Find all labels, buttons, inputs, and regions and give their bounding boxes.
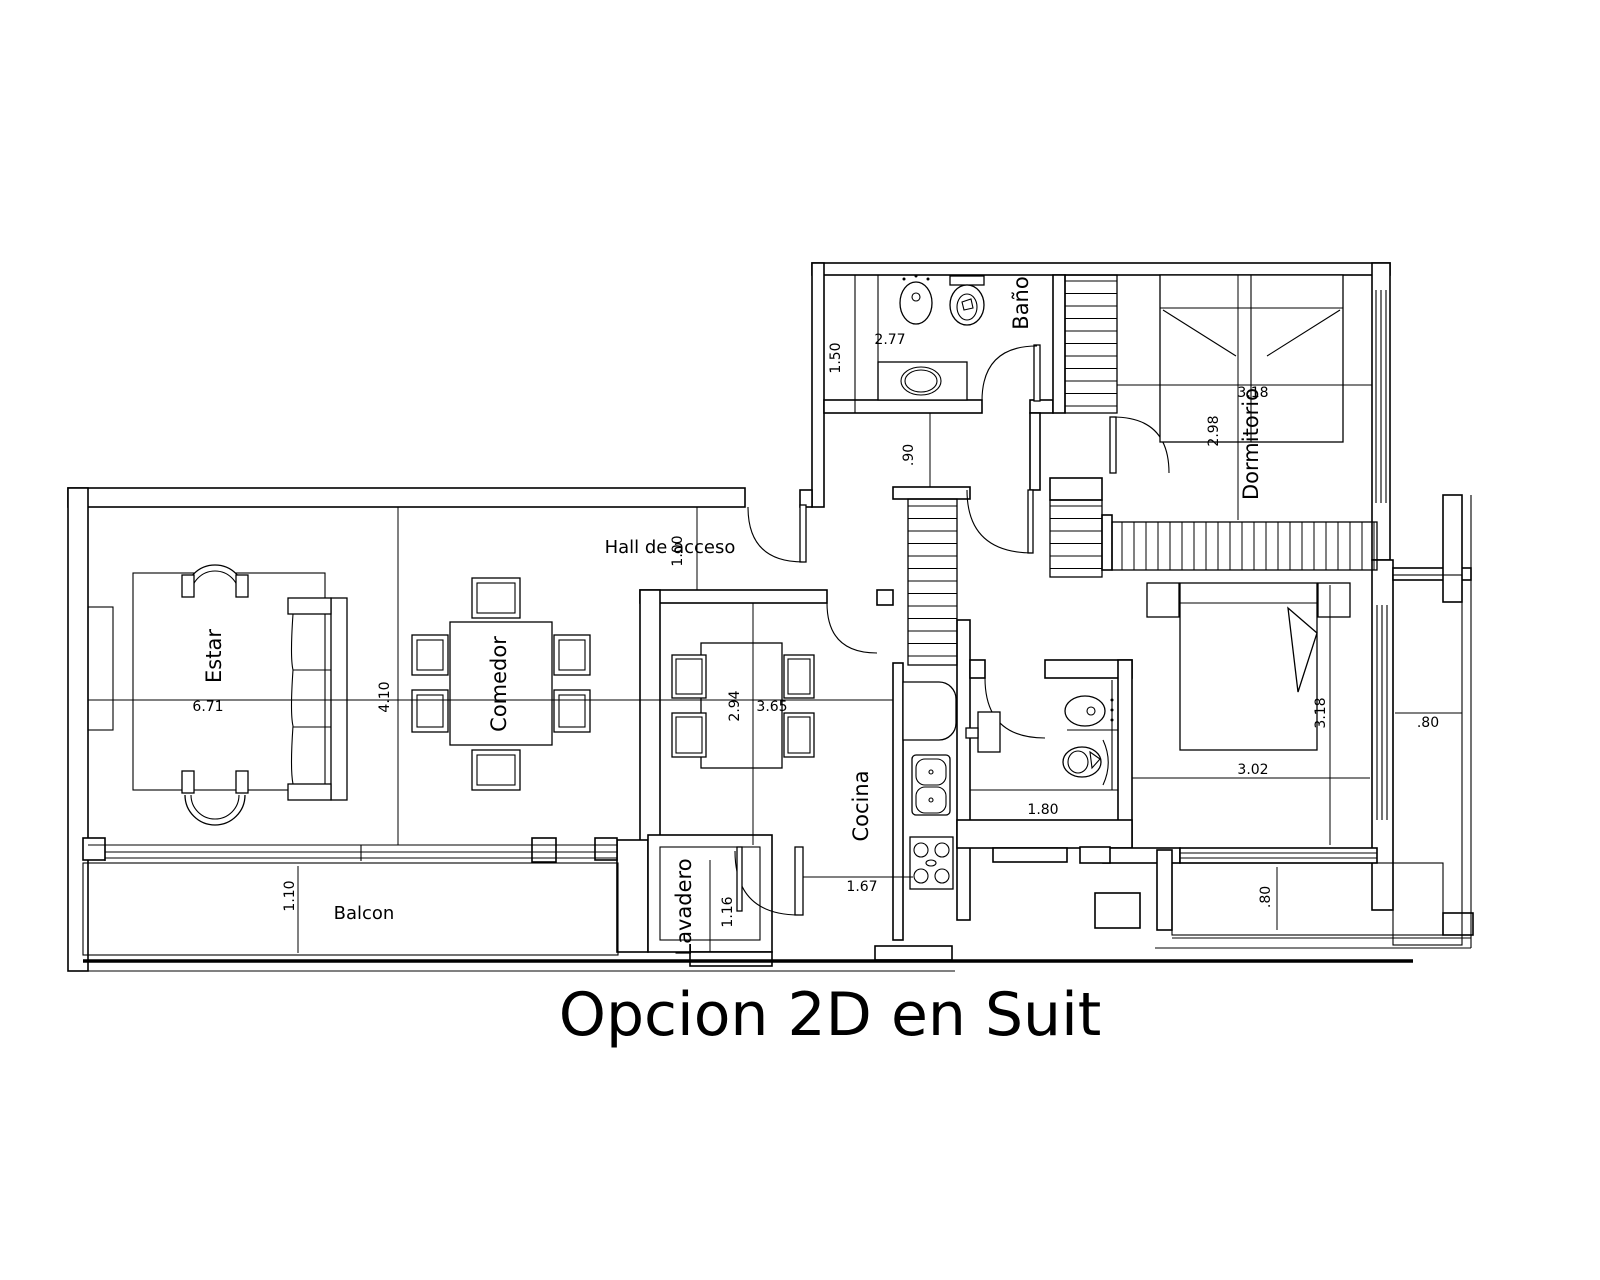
nightstand-right [1318,583,1350,617]
fridge [903,682,956,740]
label-comedor: Comedor [487,636,511,732]
window-dormitorio [1374,290,1388,503]
dim-suite-width: 3.02 [1237,762,1268,778]
dim-banio2-width: 1.80 [1027,802,1058,818]
label-cocina: Cocina [849,770,873,841]
dim-banio-depth: 1.50 [828,342,844,373]
dim-cocina-width: 1.67 [846,879,877,895]
dim-lavadero-width: 1.16 [720,896,736,927]
dim-dormitorio-depth: 2.98 [1206,415,1222,446]
label-banio: Baño [1009,276,1033,329]
dim-banio-width: 2.77 [874,332,905,348]
dim-dinette-width: 3.65 [756,699,787,715]
floor-plan-drawing: Estar Comedor Cocina Lavadero Baño Dormi… [0,0,1600,1280]
dim-hall-width: 1.00 [670,535,686,566]
wardrobe-dormitorio [1112,522,1377,570]
label-estar: Estar [202,629,226,683]
label-dormitorio: Dormitorio [1239,388,1263,500]
label-lavadero: Lavadero [672,858,696,955]
label-balcon: Balcon [334,903,395,924]
closet-corridor [1050,500,1102,577]
dim-dormitorio-width: 3.18 [1237,385,1268,401]
dim-dinette-depth: 2.94 [727,690,743,721]
toilet [950,276,984,325]
window-suite [1375,605,1390,820]
nightstand-left [1147,583,1179,617]
floor-plan-canvas: Estar Comedor Cocina Lavadero Baño Dormi… [0,0,1600,1280]
dim-pasillo-width: .90 [901,444,917,466]
door-lavadero [737,847,742,911]
vanity [878,362,967,400]
closet-hall [908,499,957,665]
water-heater-valve [966,728,978,738]
dim-balcony-bottom: .80 [1258,886,1274,908]
dim-balcon-depth: 1.10 [282,880,298,911]
dim-balcony-right: .80 [1417,715,1439,731]
kitchen-sink [912,755,950,815]
water-heater [978,712,1000,752]
dim-living-depth: 4.10 [377,681,393,712]
dim-estar-width: 6.71 [192,699,223,715]
paper-background [0,0,1600,1280]
stove [910,837,953,889]
dim-suite-depth: 3.18 [1313,697,1329,728]
plan-title: Opcion 2D en Suit [559,980,1102,1050]
closet-banio [1065,275,1117,413]
